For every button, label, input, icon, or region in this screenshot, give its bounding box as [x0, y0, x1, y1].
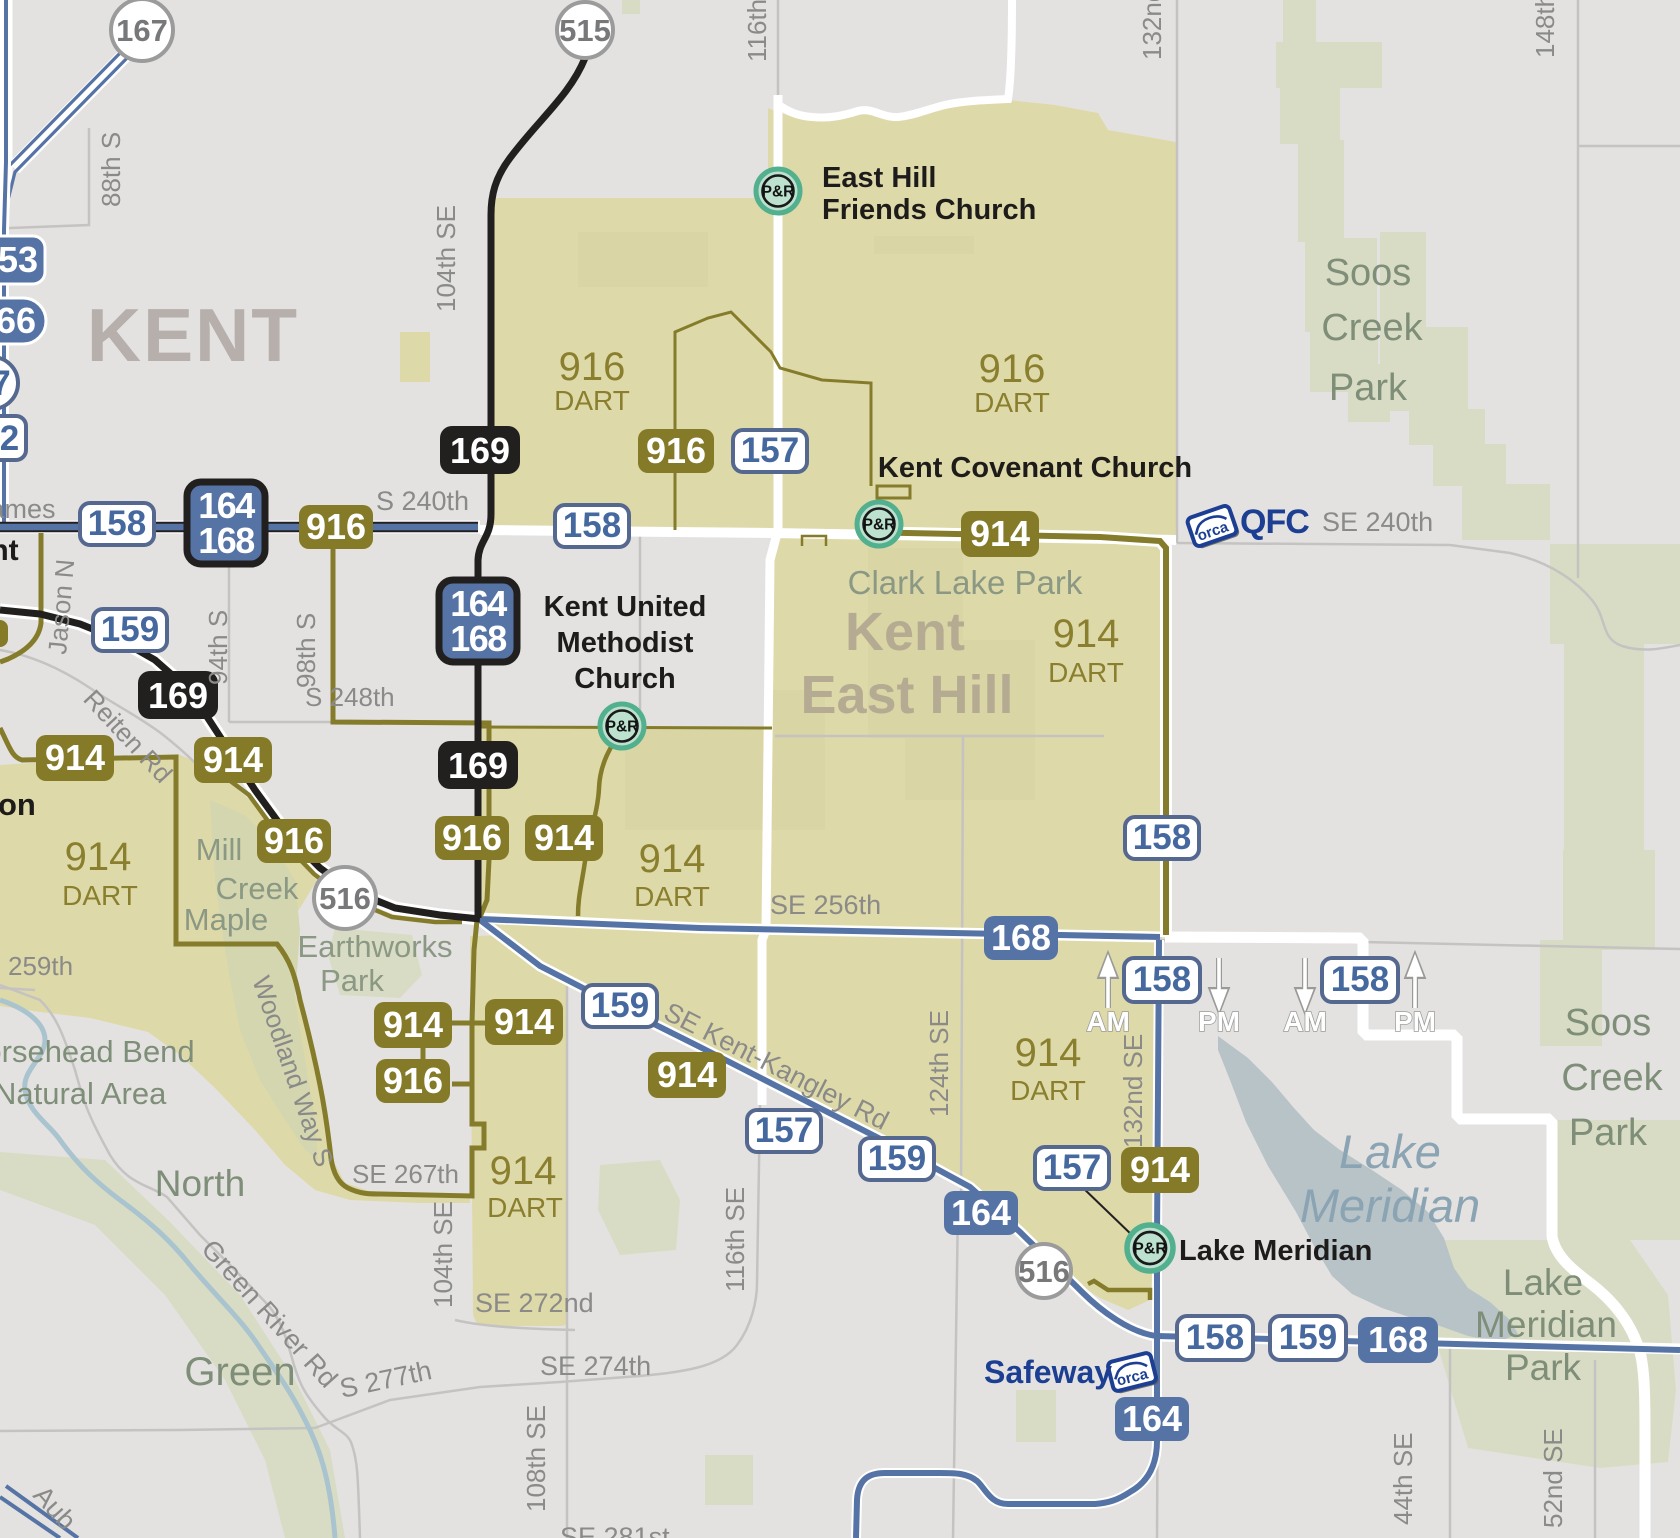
svg-text:Maple: Maple: [184, 902, 268, 937]
svg-text:Church: Church: [574, 663, 676, 695]
svg-text:East Hill: East Hill: [800, 665, 1013, 725]
svg-text:158: 158: [563, 506, 621, 545]
svg-text:914: 914: [970, 513, 1030, 554]
svg-text:169: 169: [448, 745, 508, 786]
svg-text:Kent United: Kent United: [544, 591, 707, 623]
svg-text:148th: 148th: [1530, 0, 1560, 58]
svg-text:916: 916: [979, 347, 1046, 391]
svg-text:158: 158: [88, 504, 146, 543]
svg-text:Creek: Creek: [1561, 1057, 1663, 1099]
svg-text:916: 916: [559, 345, 626, 389]
svg-text:Clark Lake Park: Clark Lake Park: [848, 564, 1083, 601]
svg-text:Horsehead Bend: Horsehead Bend: [0, 1034, 195, 1069]
svg-text:914: 914: [657, 1054, 717, 1095]
svg-text:104th SE: 104th SE: [428, 1201, 458, 1308]
svg-text:259th: 259th: [8, 951, 73, 981]
svg-text:Park: Park: [1505, 1347, 1582, 1388]
svg-text:516: 516: [1018, 1254, 1070, 1289]
svg-text:168: 168: [198, 520, 254, 561]
svg-text:158: 158: [1133, 818, 1191, 857]
svg-text:Creek: Creek: [216, 871, 299, 906]
svg-text:Friends Church: Friends Church: [822, 194, 1036, 226]
svg-text:PM: PM: [1394, 1006, 1436, 1037]
svg-text:Earthworks: Earthworks: [297, 929, 452, 964]
svg-text:132nd SE: 132nd SE: [1118, 1034, 1148, 1148]
svg-text:DART: DART: [62, 880, 138, 911]
svg-text:SE 272nd: SE 272nd: [475, 1288, 594, 1318]
svg-text:158: 158: [1186, 1318, 1244, 1357]
svg-text:DART: DART: [487, 1192, 563, 1223]
svg-text:168: 168: [991, 917, 1051, 958]
svg-text:DART: DART: [1048, 657, 1124, 688]
svg-text:East Hill: East Hill: [822, 162, 936, 194]
svg-text:Kent: Kent: [845, 602, 965, 662]
svg-text:169: 169: [148, 675, 208, 716]
svg-text:914: 914: [1130, 1149, 1190, 1190]
svg-text:132nd: 132nd: [1137, 0, 1167, 60]
svg-text:SE 281st: SE 281st: [560, 1522, 670, 1538]
svg-text:Methodist: Methodist: [557, 627, 694, 659]
svg-text:914: 914: [65, 835, 132, 879]
svg-text:168: 168: [450, 618, 506, 659]
svg-text:DART: DART: [1010, 1075, 1086, 1106]
svg-text:914: 914: [383, 1004, 443, 1045]
svg-text:159: 159: [1279, 1318, 1337, 1357]
svg-text:Kent: Kent: [0, 534, 19, 567]
svg-text:116th: 116th: [742, 0, 772, 62]
svg-text:98th S: 98th S: [291, 613, 321, 688]
svg-text:158: 158: [1133, 960, 1191, 999]
svg-text:SE 267th: SE 267th: [352, 1159, 459, 1189]
svg-text:159: 159: [591, 986, 649, 1025]
svg-text:108th SE: 108th SE: [521, 1405, 551, 1512]
svg-text:DART: DART: [974, 387, 1050, 418]
svg-text:94th S: 94th S: [203, 610, 233, 685]
svg-text:P&R: P&R: [1133, 1241, 1167, 1258]
svg-text:104th SE: 104th SE: [431, 205, 461, 312]
svg-text:Lake: Lake: [1503, 1262, 1583, 1303]
svg-text:Green: Green: [184, 1350, 295, 1394]
svg-text:914: 914: [45, 737, 105, 778]
svg-text:167: 167: [116, 13, 168, 48]
svg-text:164: 164: [1122, 1398, 1182, 1439]
svg-text:James: James: [0, 494, 56, 524]
svg-text:Park: Park: [1569, 1112, 1648, 1154]
svg-text:164: 164: [951, 1192, 1011, 1233]
svg-text:157: 157: [741, 431, 799, 470]
svg-text:914: 914: [534, 817, 594, 858]
svg-text:124th SE: 124th SE: [924, 1010, 954, 1117]
svg-text:Lake Meridian: Lake Meridian: [1179, 1235, 1372, 1267]
svg-text:AM: AM: [1086, 1006, 1130, 1037]
svg-text:914: 914: [1015, 1031, 1082, 1075]
svg-text:KENT: KENT: [87, 293, 299, 377]
svg-text:914: 914: [494, 1001, 554, 1042]
svg-text:Lake: Lake: [1339, 1125, 1441, 1178]
svg-text:116th SE: 116th SE: [720, 1187, 750, 1292]
svg-text:914: 914: [203, 739, 263, 780]
svg-text:Park: Park: [1329, 367, 1408, 409]
svg-text:DART: DART: [554, 385, 630, 416]
svg-text:88th S: 88th S: [96, 132, 126, 207]
svg-text:914: 914: [639, 837, 706, 881]
svg-text:S 248th: S 248th: [305, 682, 395, 712]
svg-text:Kent Covenant Church: Kent Covenant Church: [878, 452, 1192, 484]
svg-text:P&R: P&R: [863, 517, 896, 534]
svg-text:on: on: [0, 787, 36, 822]
svg-text:Safeway: Safeway: [984, 1354, 1112, 1390]
svg-text:AM: AM: [1283, 1006, 1327, 1037]
svg-text:QFC: QFC: [1240, 503, 1309, 541]
svg-text:Mill: Mill: [196, 832, 243, 867]
svg-text:44th SE: 44th SE: [1388, 1432, 1418, 1525]
svg-text:916: 916: [306, 506, 366, 547]
svg-text:P&R: P&R: [762, 184, 795, 201]
svg-text:158: 158: [1331, 960, 1389, 999]
svg-text:162: 162: [0, 419, 19, 458]
svg-text:916: 916: [383, 1060, 443, 1101]
svg-text:Natural Area: Natural Area: [0, 1076, 167, 1111]
svg-text:159: 159: [101, 610, 159, 649]
svg-text:PM: PM: [1198, 1006, 1240, 1037]
svg-text:P&R: P&R: [606, 719, 639, 736]
svg-text:SE 256th: SE 256th: [770, 890, 881, 920]
svg-text:914: 914: [1053, 612, 1120, 656]
svg-text:515: 515: [559, 13, 611, 48]
svg-text:157: 157: [1043, 1148, 1101, 1187]
svg-text:916: 916: [442, 817, 502, 858]
svg-text:7: 7: [0, 364, 11, 403]
svg-text:166: 166: [0, 300, 36, 341]
svg-text:153: 153: [0, 239, 38, 280]
svg-text:Soos: Soos: [1325, 252, 1412, 294]
svg-text:North: North: [155, 1163, 245, 1204]
svg-text:157: 157: [755, 1111, 813, 1150]
svg-text:Creek: Creek: [1321, 307, 1423, 349]
svg-text:169: 169: [450, 430, 510, 471]
svg-text:Park: Park: [320, 963, 384, 998]
svg-text:168: 168: [1368, 1319, 1428, 1360]
svg-text:516: 516: [319, 881, 371, 916]
svg-text:52nd SE: 52nd SE: [1538, 1428, 1568, 1528]
svg-text:DART: DART: [634, 881, 710, 912]
svg-text:Meridian: Meridian: [1300, 1179, 1480, 1232]
svg-text:S 240th: S 240th: [376, 486, 469, 516]
svg-text:SE 274th: SE 274th: [540, 1351, 651, 1381]
svg-text:916: 916: [646, 430, 706, 471]
svg-text:Soos: Soos: [1565, 1002, 1652, 1044]
svg-text:914: 914: [490, 1149, 557, 1193]
svg-text:159: 159: [868, 1139, 926, 1178]
svg-text:916: 916: [264, 820, 324, 861]
svg-text:Meridian: Meridian: [1475, 1304, 1617, 1345]
svg-text:SE 240th: SE 240th: [1322, 507, 1433, 537]
